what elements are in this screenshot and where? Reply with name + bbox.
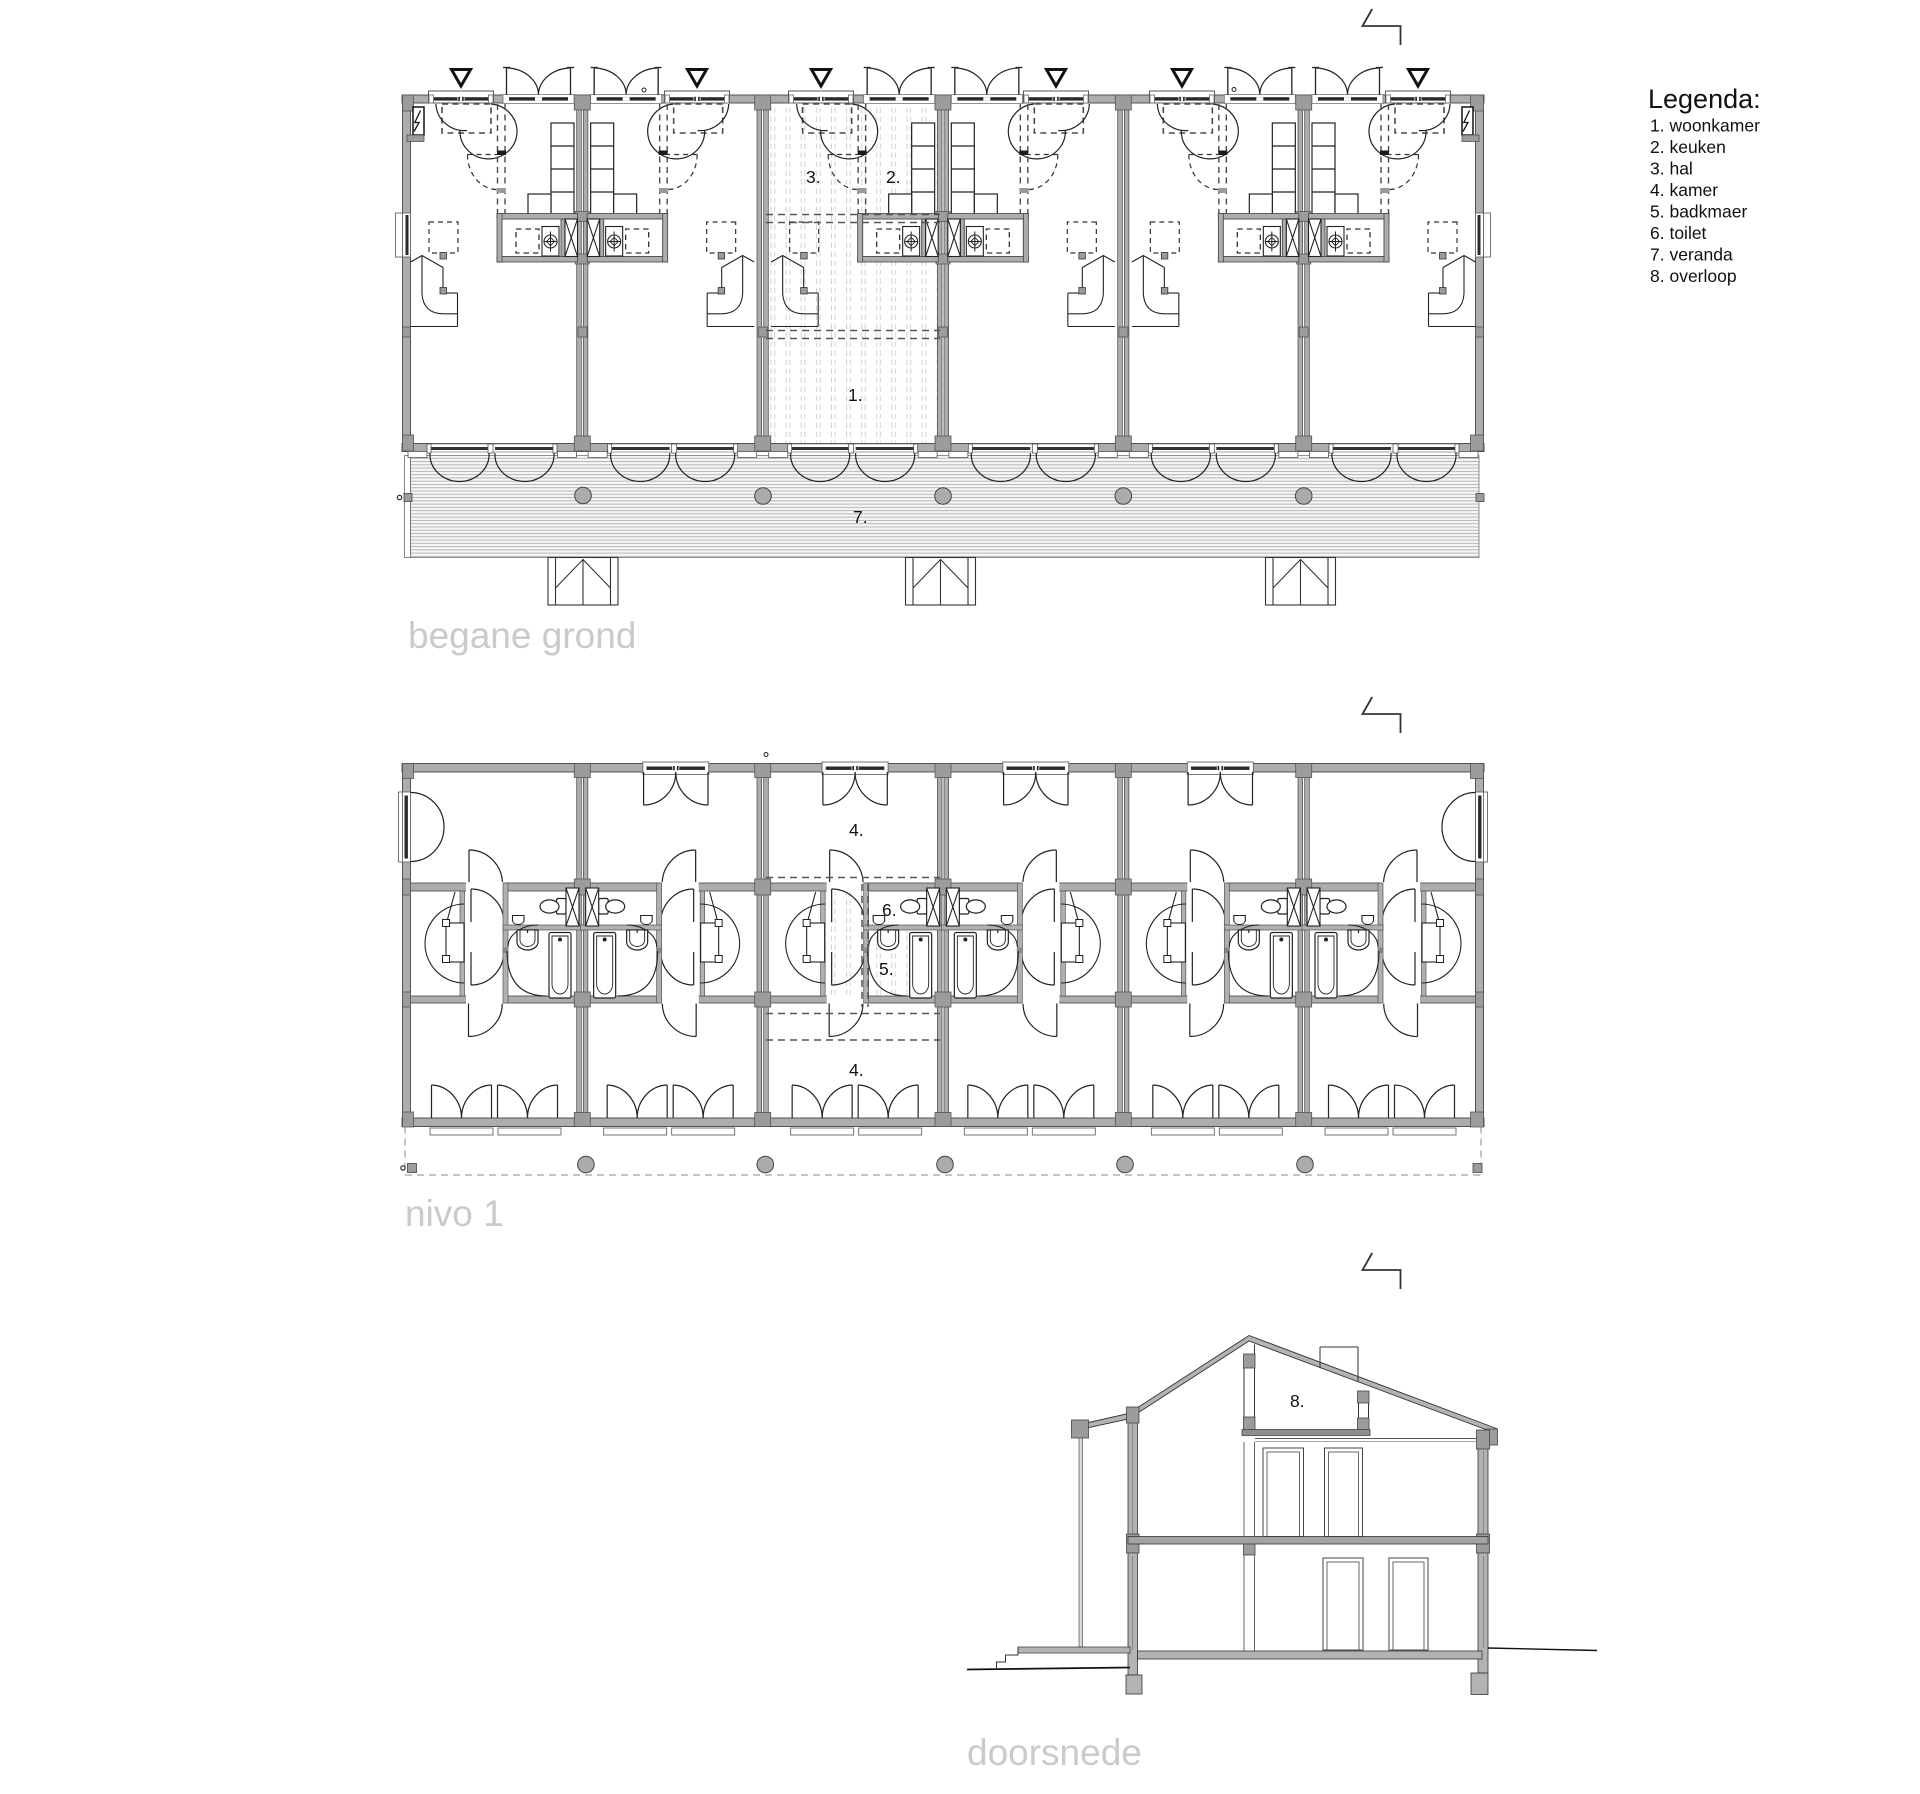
svg-text:2.: 2. bbox=[886, 167, 901, 187]
svg-text:8. overloop: 8. overloop bbox=[1650, 266, 1737, 286]
svg-text:nivo 1: nivo 1 bbox=[405, 1193, 504, 1234]
svg-text:4.: 4. bbox=[849, 820, 864, 840]
svg-text:2. keuken: 2. keuken bbox=[1650, 137, 1726, 157]
svg-text:doorsnede: doorsnede bbox=[967, 1732, 1142, 1773]
svg-text:Legenda:: Legenda: bbox=[1648, 84, 1761, 114]
svg-text:8.: 8. bbox=[1290, 1391, 1305, 1411]
svg-text:7. veranda: 7. veranda bbox=[1650, 245, 1733, 265]
svg-text:6. toilet: 6. toilet bbox=[1650, 223, 1707, 243]
svg-text:7.: 7. bbox=[853, 507, 868, 527]
svg-text:6.: 6. bbox=[882, 900, 897, 920]
svg-text:5. badkmaer: 5. badkmaer bbox=[1650, 202, 1747, 222]
svg-text:1. woonkamer: 1. woonkamer bbox=[1650, 116, 1760, 136]
svg-text:5.: 5. bbox=[879, 959, 894, 979]
svg-text:4. kamer: 4. kamer bbox=[1650, 180, 1718, 200]
svg-text:3. hal: 3. hal bbox=[1650, 159, 1693, 179]
svg-text:1.: 1. bbox=[848, 385, 863, 405]
svg-text:4.: 4. bbox=[849, 1060, 864, 1080]
svg-text:begane grond: begane grond bbox=[408, 615, 636, 656]
svg-text:3.: 3. bbox=[806, 167, 821, 187]
